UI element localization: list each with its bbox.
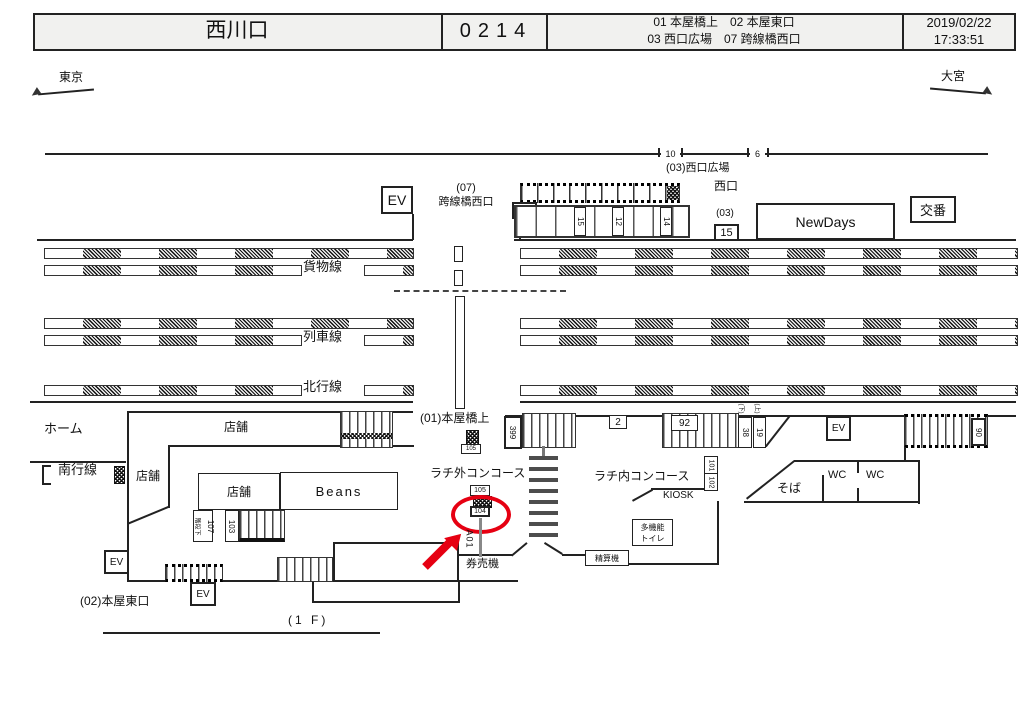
wall-line: [458, 580, 460, 603]
wc-label: WC: [828, 469, 846, 482]
soba-label: そば: [777, 482, 801, 496]
wall-diagonal: [632, 489, 653, 502]
stairs: [522, 413, 576, 448]
location-line-1: 01 本屋橋上 02 本屋東口: [556, 16, 892, 30]
billboard-38: 38: [738, 417, 752, 448]
billboard-strip: [44, 335, 302, 346]
billboard-strip: [364, 335, 414, 346]
plaza-walkway: [520, 183, 680, 203]
platform-edge: [37, 239, 413, 241]
billboard-strip: [520, 248, 1018, 259]
plaza-count-10: 10: [661, 149, 680, 159]
platform-edge: [30, 401, 413, 403]
plaza-count-6: 6: [750, 149, 765, 159]
stairs: [277, 557, 333, 582]
header-divider: [546, 13, 548, 51]
annotation-arrow: [423, 527, 471, 573]
platform-edge: [520, 401, 1016, 403]
multifunction-toilet-box: 多機能 トイレ: [632, 519, 673, 546]
west-exit-label: 西口: [714, 180, 738, 194]
billboard-strip: [44, 265, 302, 276]
bracket-icon: [42, 465, 51, 485]
shop-label-left: 店舗: [136, 470, 160, 484]
inside-gate-concourse-label: ラチ内コンコース: [594, 470, 689, 484]
billboard-strip: [520, 385, 1018, 396]
fare-adjust-box: 精算機: [585, 550, 629, 566]
board-pole: [479, 518, 482, 557]
billboard-strip: [520, 318, 1018, 329]
outside-gate-concourse-label: ラチ外コンコース: [430, 467, 525, 481]
stairs: [340, 411, 393, 448]
walkway-hatch-end: [667, 186, 679, 200]
direction-west-line: [38, 89, 94, 95]
beans-store: Beans: [280, 472, 398, 510]
arrow-left-icon: [30, 87, 42, 99]
wall-line: [744, 501, 920, 503]
track-label-south: 南行線: [58, 463, 97, 478]
bridge-label: (01)本屋橋上: [420, 412, 489, 426]
billboard-strip: [364, 385, 414, 396]
billboard-101: 101: [704, 456, 718, 474]
billboard-103: 103: [225, 510, 239, 542]
billboard-strip: [44, 318, 414, 329]
escalator-steps: [529, 456, 558, 544]
wall-line: [857, 488, 859, 503]
stairs: [239, 510, 285, 542]
wall-line: [458, 580, 518, 582]
newdays-store: NewDays: [756, 203, 895, 240]
wall-diagonal: [511, 542, 528, 556]
koban-box: 交番: [910, 196, 956, 223]
small-board-icon: [114, 466, 125, 484]
billboard-90: 90: [971, 418, 986, 446]
tick-mark: [681, 148, 683, 157]
overpass-west-exit-label: (07): [420, 182, 512, 195]
east-exit-label: (02)本屋東口: [80, 595, 149, 609]
wall-line: [412, 214, 414, 240]
corridor-pillar: [454, 246, 463, 262]
track-label-train: 列車線: [303, 330, 342, 345]
shop-box: 店舗: [198, 473, 280, 510]
wall-line: [717, 501, 719, 565]
platform-edge: [514, 239, 1016, 241]
direction-east-line: [930, 88, 986, 94]
elevator-box: EV: [104, 550, 129, 574]
billboard-399: 399: [504, 416, 522, 449]
wall-line: [168, 445, 170, 508]
track-label-north: 北行線: [303, 380, 342, 395]
billboard-15-v: 15: [574, 207, 586, 236]
overpass-west-exit-label2: 跨線橋西口: [420, 196, 512, 209]
billboard-strip: [520, 265, 1018, 276]
billboard-strip: [520, 335, 1018, 346]
station-code: 0214: [441, 20, 546, 43]
board-19-direction: (上): [751, 400, 765, 416]
stairs-landing-hatch: [341, 433, 392, 439]
wall-line: [312, 580, 314, 603]
board-03-caption: (03): [711, 208, 739, 220]
billboard-14-v: 14: [660, 207, 672, 236]
billboard-107-understair: 階段下 107: [193, 510, 213, 542]
billboard-12-v: 12: [612, 207, 624, 236]
board-38-direction: (下): [735, 400, 749, 416]
wall-line: [822, 475, 824, 503]
billboard-105-small: 105: [461, 444, 481, 454]
kiosk-label: KIOSK: [663, 490, 694, 502]
elevator-box: EV: [381, 186, 413, 214]
billboard-strip: [44, 385, 302, 396]
wall-line: [918, 460, 920, 504]
billboard-102: 102: [704, 473, 718, 491]
corridor-dashed-line: [394, 290, 566, 292]
elevator-box: EV: [190, 582, 216, 606]
billboard-strip: [364, 265, 414, 276]
header-date: 2019/02/22: [902, 16, 1016, 31]
tick-mark: [747, 148, 749, 157]
billboard-strip: [44, 248, 414, 259]
wc-label: WC: [866, 469, 884, 482]
corridor-pillar: [454, 270, 463, 286]
overpass-bridge: [455, 296, 465, 409]
north-boundary-line: [45, 153, 988, 155]
wall-line: [628, 563, 719, 565]
location-line-2: 03 西口広場 07 跨線橋西口: [556, 33, 892, 47]
underline: [103, 632, 380, 634]
billboard-2: 2: [609, 415, 627, 429]
direction-west-label: 東京: [48, 71, 94, 85]
wall-line: [857, 460, 859, 473]
tick-mark: [767, 148, 769, 157]
tick-mark: [658, 148, 660, 157]
wall-diagonal: [127, 506, 169, 525]
track-label-freight: 貨物線: [303, 260, 342, 275]
shop-label-top: 店舗: [224, 421, 248, 435]
station-name: 西川口: [33, 19, 441, 43]
platform-home-label: ホーム: [44, 422, 83, 437]
plaza-label: (03)西口広場: [666, 162, 730, 175]
elevator-box: EV: [826, 416, 851, 441]
arrow-right-icon: [983, 86, 995, 98]
billboard-92: 92: [671, 415, 698, 431]
wall-line: [312, 601, 460, 603]
stairs-hatched: [165, 564, 223, 582]
header-time: 17:33:51: [902, 33, 1016, 48]
floor-label: (1 F): [288, 614, 328, 628]
station-map-screen: 西川口 0214 01 本屋橋上 02 本屋東口 03 西口広場 07 跨線橋西…: [0, 0, 1024, 724]
direction-east-label: 大宮: [930, 70, 976, 84]
billboard-19: 19: [753, 417, 766, 448]
wall-diagonal: [765, 415, 791, 447]
